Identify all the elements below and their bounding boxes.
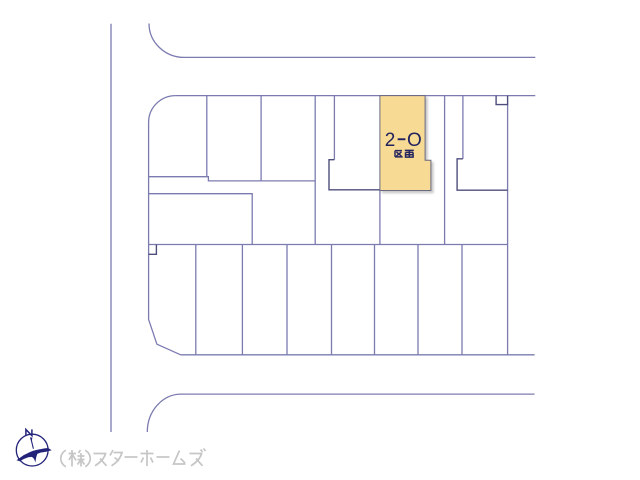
svg-text:O: O: [407, 130, 422, 151]
svg-text:2: 2: [385, 130, 396, 151]
